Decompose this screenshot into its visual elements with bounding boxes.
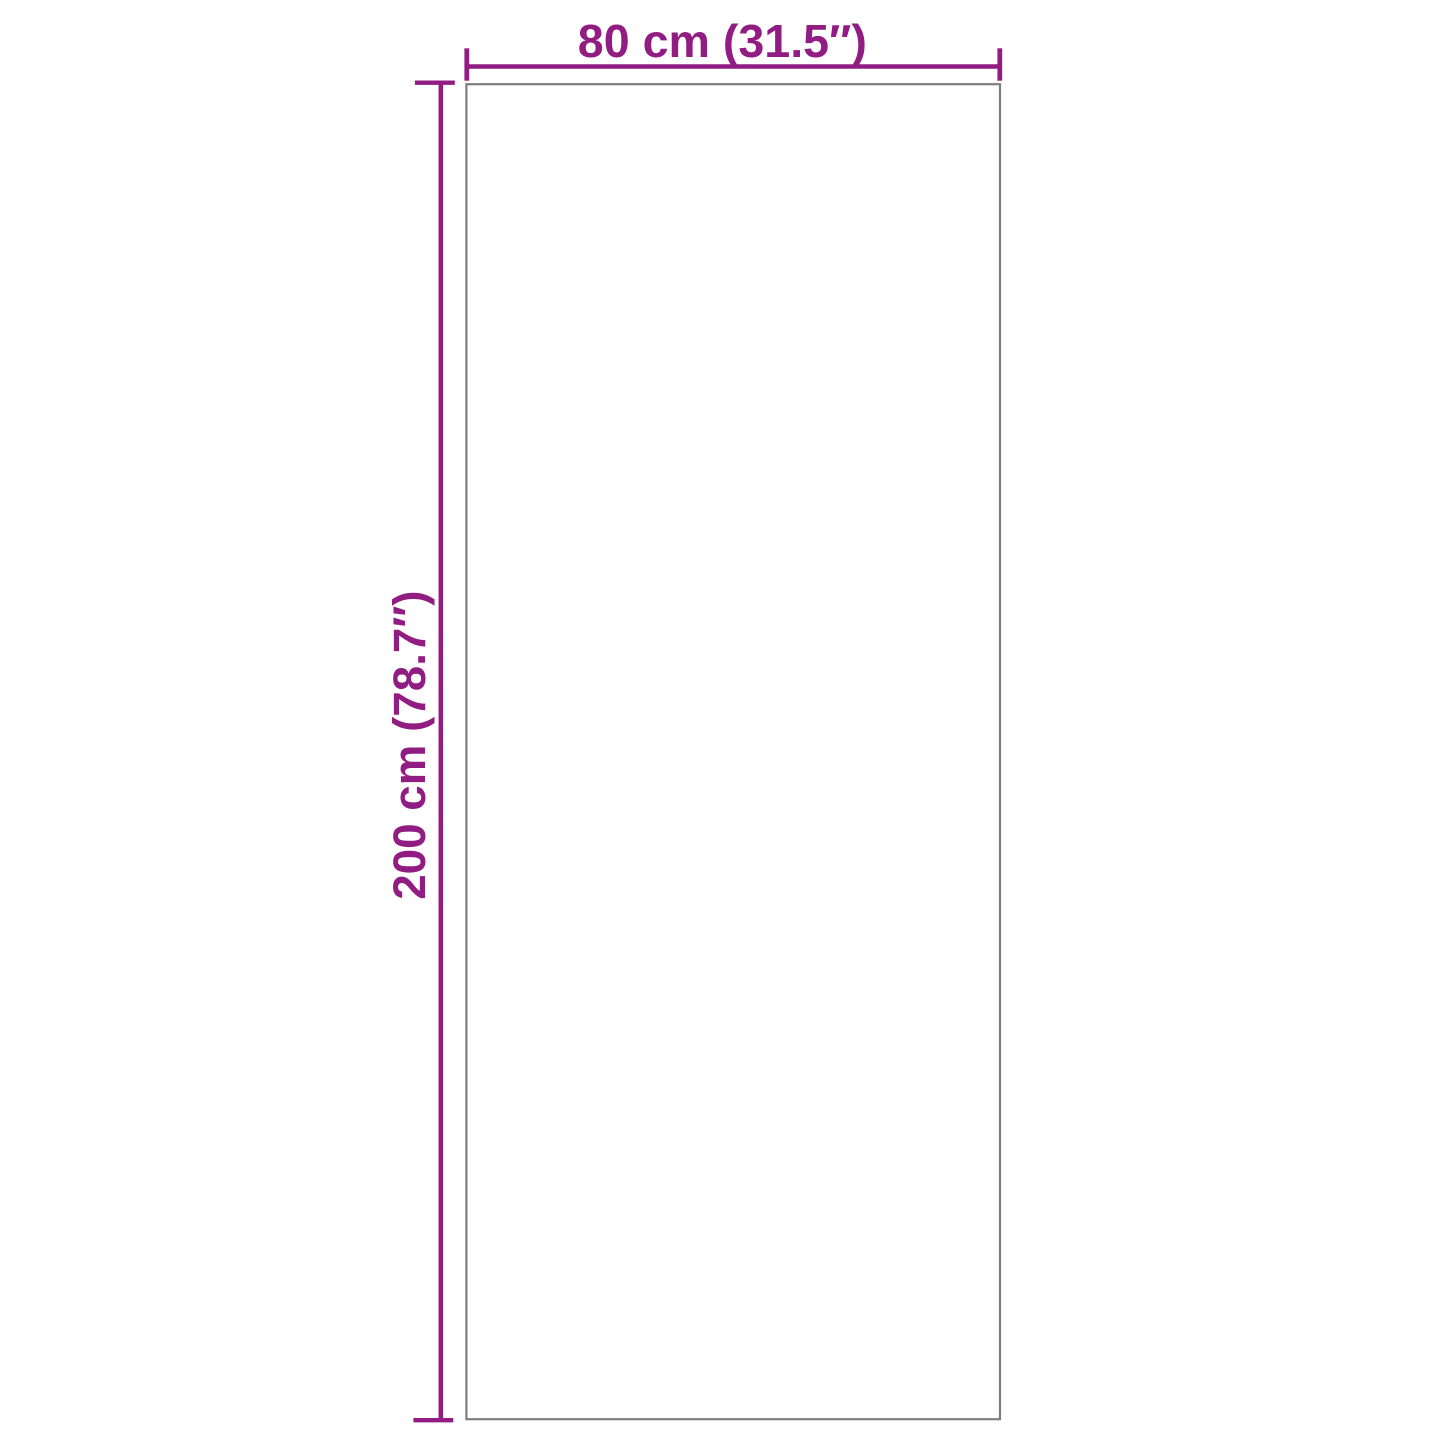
svg-text:200 cm (78.7″): 200 cm (78.7″) [384, 590, 435, 899]
svg-text:80 cm (31.5″): 80 cm (31.5″) [578, 15, 867, 67]
